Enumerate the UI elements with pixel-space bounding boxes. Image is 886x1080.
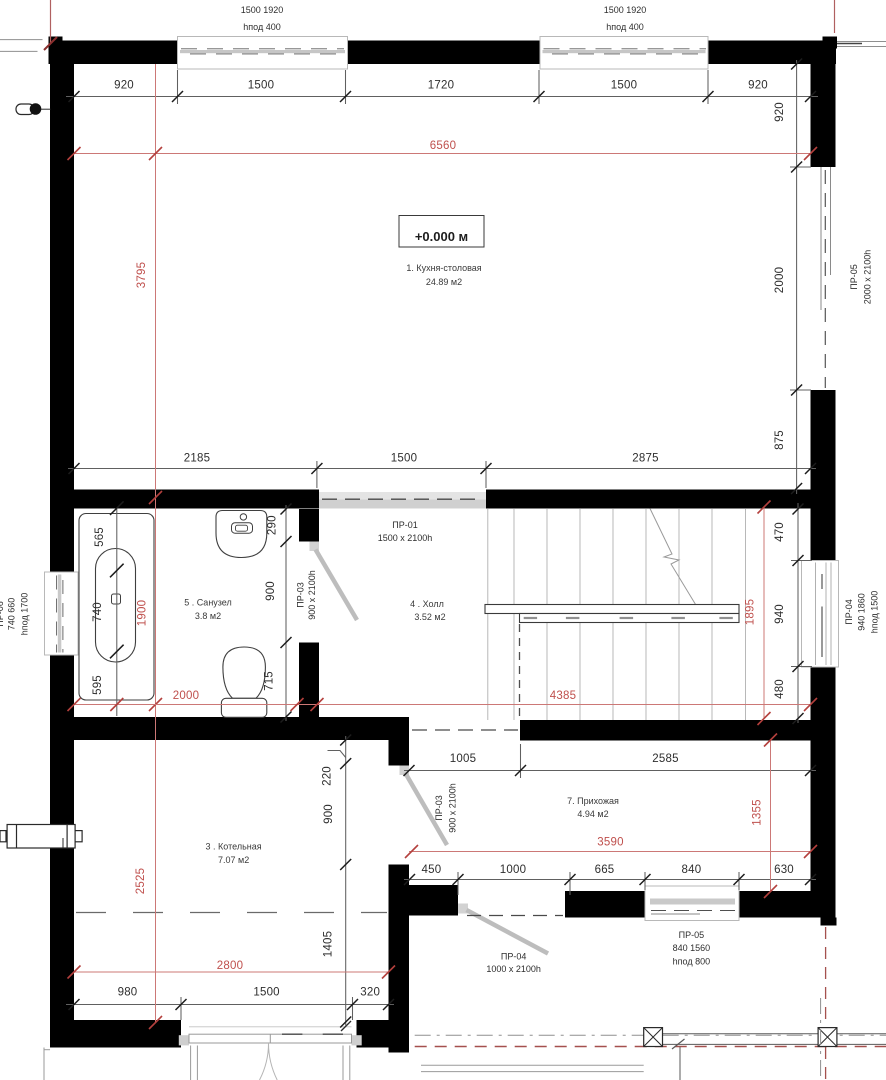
svg-text:630: 630 [774,864,794,876]
svg-text:900: 900 [265,581,277,601]
svg-text:1500 x 2100h: 1500 x 2100h [378,533,433,543]
svg-text:450: 450 [422,864,442,876]
svg-text:220: 220 [322,766,334,786]
svg-text:3.8 м2: 3.8 м2 [195,611,221,621]
svg-text:ПР-05: ПР-05 [849,264,859,289]
svg-text:2000 x 2100h: 2000 x 2100h [863,250,873,305]
svg-text:1. Кухня-столовая: 1. Кухня-столовая [406,263,481,273]
svg-text:840: 840 [682,864,702,876]
svg-text:1500: 1500 [611,80,637,92]
svg-text:7.07 м2: 7.07 м2 [218,855,249,865]
svg-text:3590: 3590 [597,837,623,849]
svg-text:2185: 2185 [184,453,210,465]
svg-text:4385: 4385 [550,690,576,702]
svg-text:2525: 2525 [135,868,147,894]
svg-text:1500: 1500 [253,987,279,999]
svg-text:1720: 1720 [428,80,454,92]
svg-text:hпод 1500: hпод 1500 [870,591,880,633]
svg-text:740 660: 740 660 [7,598,17,631]
svg-text:ПР-04: ПР-04 [844,599,854,624]
svg-text:1000 x 2100h: 1000 x 2100h [486,964,541,974]
svg-text:1900: 1900 [137,600,149,626]
svg-text:3 . Котельная: 3 . Котельная [206,842,262,852]
svg-text:290: 290 [267,515,279,535]
svg-text:1895: 1895 [745,599,757,625]
svg-text:920: 920 [114,80,134,92]
svg-text:ПР-01: ПР-01 [392,520,417,530]
svg-text:1405: 1405 [322,931,334,957]
svg-text:665: 665 [595,864,615,876]
svg-text:920: 920 [774,102,786,122]
svg-text:320: 320 [360,987,380,999]
svg-text:1005: 1005 [450,753,476,765]
svg-text:1500 1920: 1500 1920 [604,5,647,15]
svg-text:ПР-05: ПР-05 [679,930,704,940]
svg-text:6560: 6560 [430,140,456,152]
svg-text:3795: 3795 [136,262,148,288]
svg-text:24.89 м2: 24.89 м2 [426,277,462,287]
svg-text:840 1560: 840 1560 [673,943,711,953]
svg-text:1500: 1500 [391,453,417,465]
svg-text:2875: 2875 [632,453,658,465]
svg-text:3.52 м2: 3.52 м2 [414,612,445,622]
svg-text:hпод 1700: hпод 1700 [20,593,30,635]
svg-text:+0.000 м: +0.000 м [415,229,468,244]
svg-text:hпод 800: hпод 800 [673,957,710,967]
svg-text:2585: 2585 [652,753,678,765]
svg-text:480: 480 [774,679,786,699]
svg-text:900 x 2100h: 900 x 2100h [307,570,317,620]
svg-text:1500: 1500 [248,80,274,92]
svg-text:920: 920 [748,80,768,92]
svg-text:595: 595 [92,675,104,695]
svg-text:470: 470 [774,522,786,542]
svg-text:715: 715 [264,671,276,691]
svg-text:875: 875 [774,430,786,450]
svg-text:940: 940 [774,604,786,624]
svg-text:1000: 1000 [500,864,526,876]
svg-text:900 x 2100h: 900 x 2100h [448,783,458,833]
svg-text:hпод 400: hпод 400 [606,22,643,32]
svg-text:940 1860: 940 1860 [857,593,867,631]
svg-text:ПР-06: ПР-06 [0,601,5,626]
svg-text:1355: 1355 [752,799,764,825]
svg-text:4 . Холл: 4 . Холл [410,599,444,609]
svg-text:hпод 400: hпод 400 [243,22,280,32]
svg-text:2800: 2800 [217,960,243,972]
svg-text:4.94 м2: 4.94 м2 [577,809,608,819]
svg-text:ПР-04: ПР-04 [501,952,526,962]
svg-text:900: 900 [323,804,335,824]
svg-text:7. Прихожая: 7. Прихожая [567,796,619,806]
svg-text:5 . Санузел: 5 . Санузел [184,598,232,608]
svg-text:1500 1920: 1500 1920 [241,5,284,15]
svg-text:565: 565 [94,527,106,547]
svg-text:740: 740 [92,602,104,622]
svg-text:ПР-03: ПР-03 [296,582,306,607]
svg-text:2000: 2000 [774,267,786,293]
svg-text:2000: 2000 [173,690,199,702]
svg-text:ПР-03: ПР-03 [434,795,444,820]
svg-text:980: 980 [118,987,138,999]
